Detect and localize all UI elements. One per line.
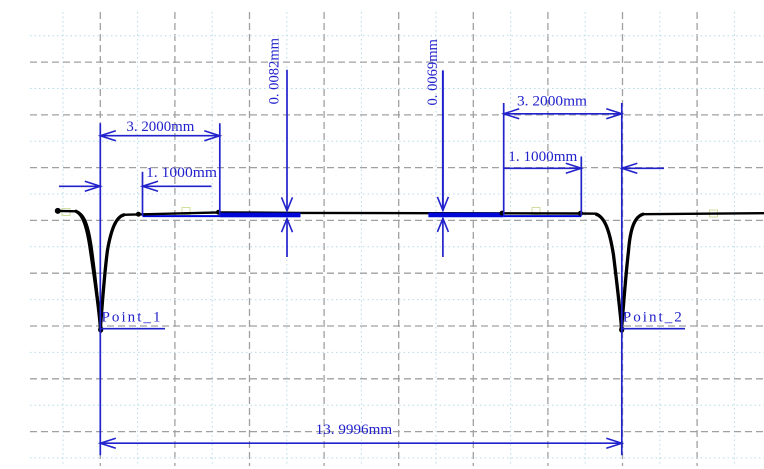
svg-text:1. 1000mm: 1. 1000mm bbox=[508, 149, 577, 165]
svg-text:13. 9996mm: 13. 9996mm bbox=[316, 422, 393, 438]
svg-text:3. 2000mm: 3. 2000mm bbox=[126, 119, 194, 135]
svg-text:Point_1: Point_1 bbox=[102, 310, 163, 326]
svg-text:1. 1000mm: 1. 1000mm bbox=[146, 165, 217, 181]
svg-text:0. 0069mm: 0. 0069mm bbox=[425, 39, 441, 106]
svg-text:3. 2000mm: 3. 2000mm bbox=[517, 93, 587, 109]
svg-text:0. 0082mm: 0. 0082mm bbox=[267, 38, 283, 105]
svg-text:Point_2: Point_2 bbox=[623, 310, 684, 326]
